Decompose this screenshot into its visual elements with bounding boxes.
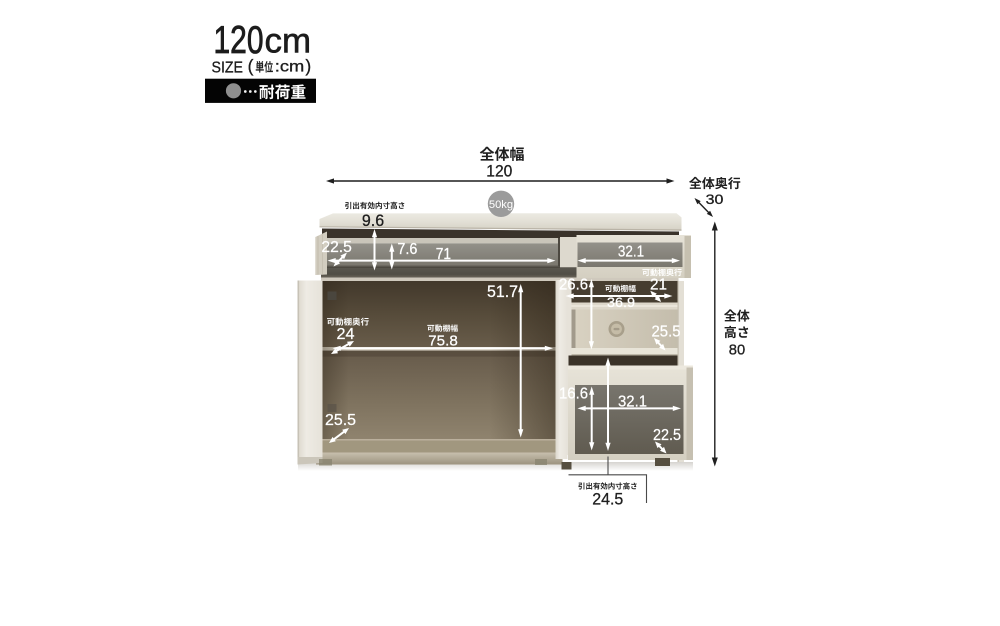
svg-text:80: 80 (729, 341, 745, 358)
svg-text:24.5: 24.5 (592, 491, 623, 509)
svg-text:7.6: 7.6 (397, 241, 417, 258)
svg-text:50kg: 50kg (489, 199, 513, 211)
svg-text:9.6: 9.6 (362, 212, 384, 230)
svg-text:22.5: 22.5 (321, 239, 351, 256)
svg-text:75.8: 75.8 (428, 333, 458, 350)
svg-text:24: 24 (337, 326, 355, 343)
svg-text:25.5: 25.5 (325, 412, 356, 429)
svg-text:25.5: 25.5 (652, 323, 681, 340)
svg-text:22.5: 22.5 (653, 427, 681, 444)
svg-text:16.6: 16.6 (559, 386, 588, 403)
svg-text:36.9: 36.9 (607, 294, 635, 310)
svg-text:21: 21 (650, 276, 667, 293)
svg-text:32.1: 32.1 (618, 394, 647, 411)
svg-text::cm: :cm (275, 59, 305, 76)
svg-text:120: 120 (486, 162, 512, 180)
svg-text:51.7: 51.7 (487, 283, 518, 301)
svg-text:SIZE: SIZE (212, 60, 244, 77)
svg-text:(: ( (248, 56, 254, 76)
svg-text:71: 71 (436, 246, 451, 263)
svg-text:32.1: 32.1 (618, 243, 644, 260)
svg-text:26.6: 26.6 (559, 277, 588, 294)
svg-text:cm: cm (265, 22, 312, 61)
svg-text:): ) (305, 56, 311, 76)
svg-text:30: 30 (706, 192, 724, 207)
svg-text:120: 120 (214, 19, 264, 62)
